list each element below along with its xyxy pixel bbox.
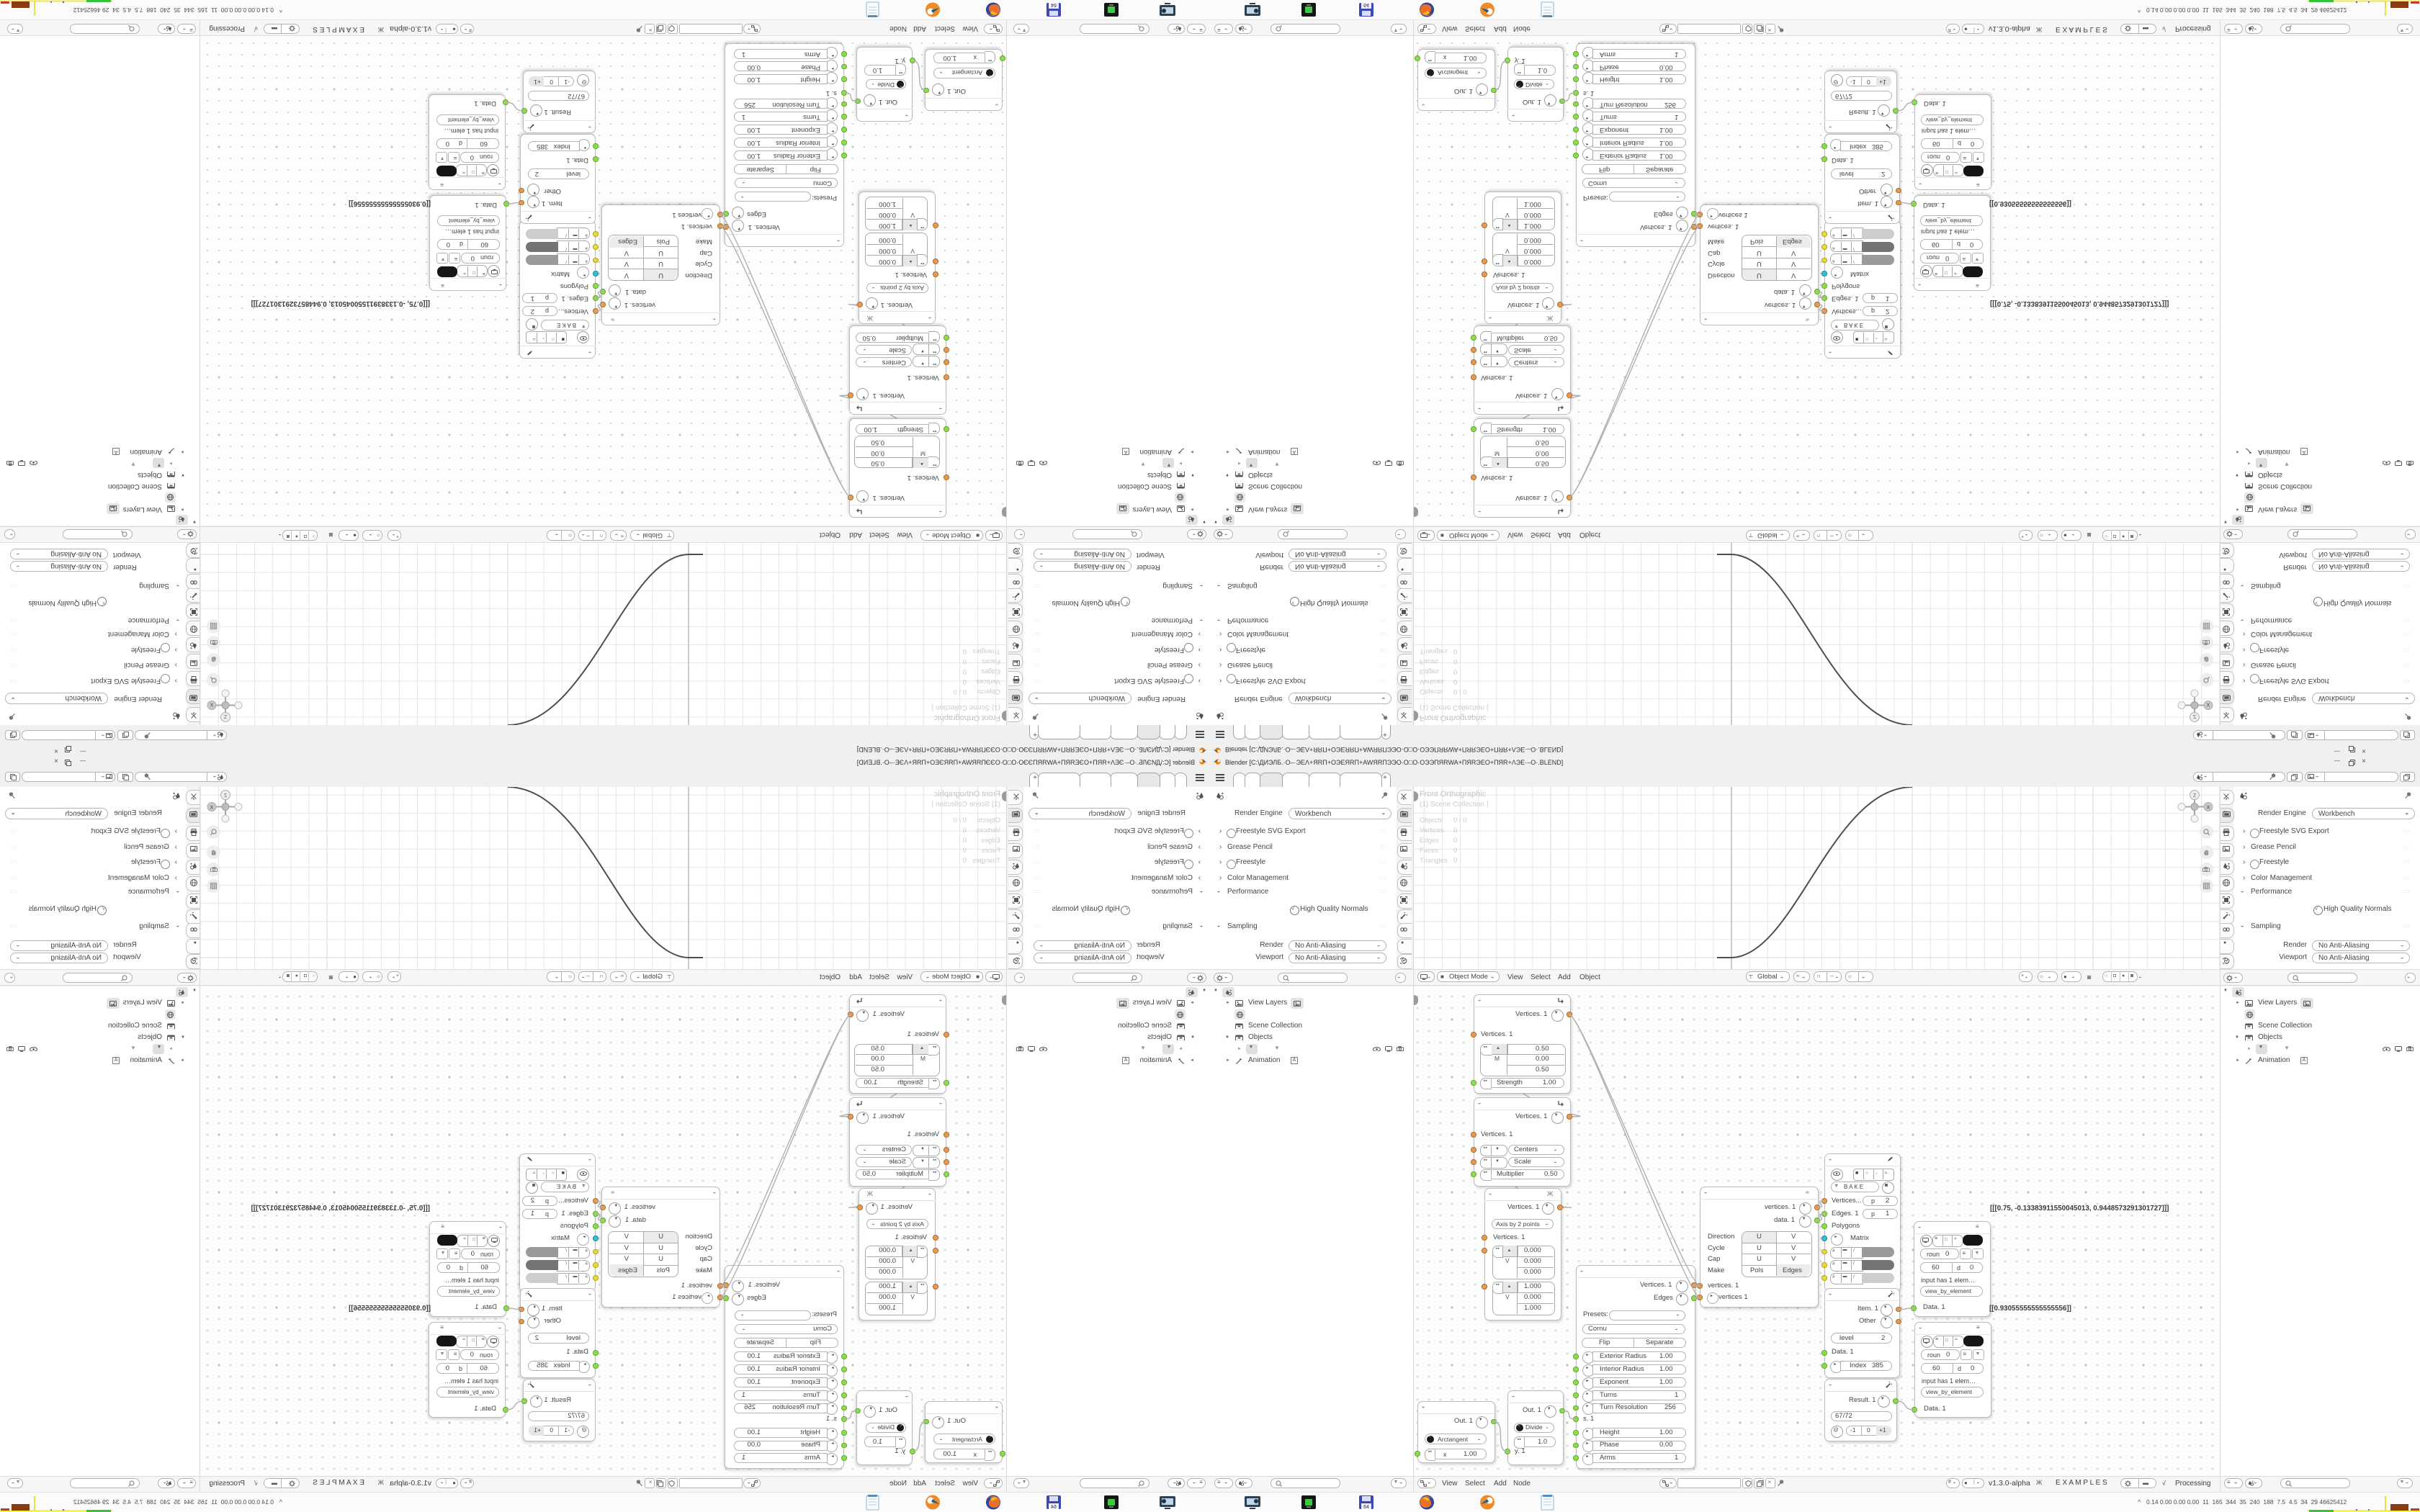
svg-text:64: 64 (1051, 2, 1057, 7)
svg-text:X: X (2207, 806, 2210, 811)
svg-text:64: 64 (1051, 1505, 1057, 1510)
svg-text:Z: Z (2193, 793, 2197, 798)
svg-text:X: X (210, 702, 213, 707)
svg-text:Z: Z (2193, 714, 2197, 719)
svg-text:X: X (2207, 702, 2210, 707)
svg-text:64: 64 (1363, 2, 1369, 7)
svg-text:64: 64 (1363, 1505, 1369, 1510)
svg-text:Z: Z (223, 714, 227, 719)
svg-text:Z: Z (223, 793, 227, 798)
svg-text:X: X (210, 806, 213, 811)
